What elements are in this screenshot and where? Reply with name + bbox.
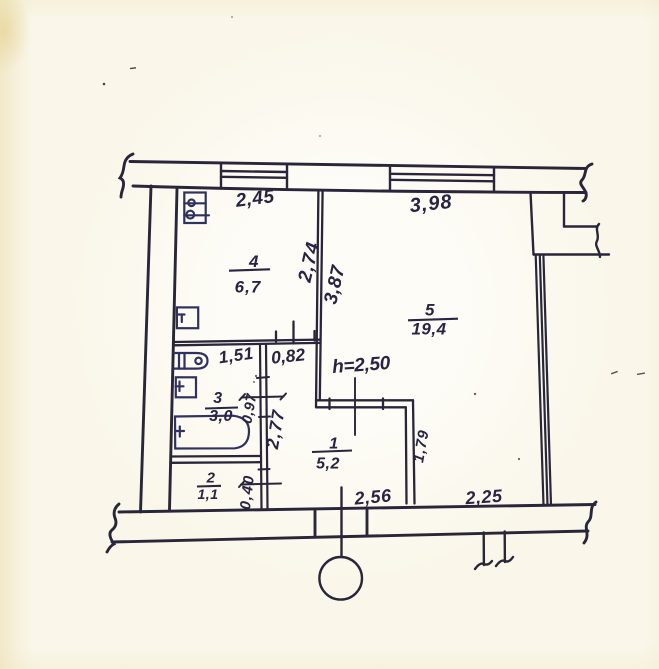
svg-text:1,1: 1,1: [198, 486, 219, 502]
svg-text:2,45: 2,45: [234, 186, 276, 212]
svg-text:2,74: 2,74: [294, 240, 324, 286]
svg-text:2: 2: [206, 470, 216, 487]
svg-text:5,2: 5,2: [316, 456, 340, 473]
svg-text:2,25: 2,25: [464, 486, 504, 509]
svg-text:4: 4: [248, 252, 259, 271]
svg-text:5: 5: [425, 301, 435, 320]
svg-text:3: 3: [213, 390, 222, 407]
svg-text:1,51: 1,51: [217, 344, 254, 368]
svg-text:3,98: 3,98: [409, 191, 454, 217]
svg-text:0,82: 0,82: [270, 344, 306, 367]
svg-text:3,0: 3,0: [209, 408, 233, 425]
svg-text:3,87: 3,87: [320, 263, 349, 307]
svg-text:h=2,50: h=2,50: [331, 353, 391, 378]
svg-text:6,7: 6,7: [235, 278, 262, 297]
svg-text:19,4: 19,4: [411, 320, 446, 339]
svg-text:1: 1: [329, 436, 338, 453]
svg-text:2,56: 2,56: [353, 485, 393, 508]
svg-text:0,40: 0,40: [237, 474, 258, 511]
